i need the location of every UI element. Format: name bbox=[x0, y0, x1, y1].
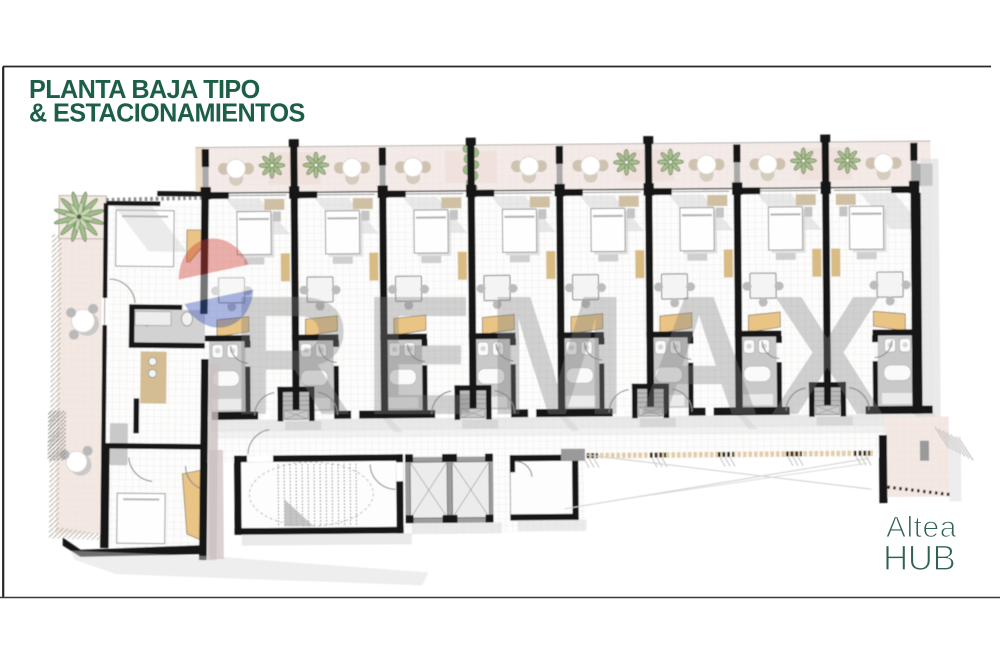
svg-text:& ESTACIONAMIENTOS: & ESTACIONAMIENTOS bbox=[29, 99, 305, 127]
svg-text:HUB: HUB bbox=[883, 539, 955, 578]
svg-text:REMAX: REMAX bbox=[230, 261, 894, 451]
